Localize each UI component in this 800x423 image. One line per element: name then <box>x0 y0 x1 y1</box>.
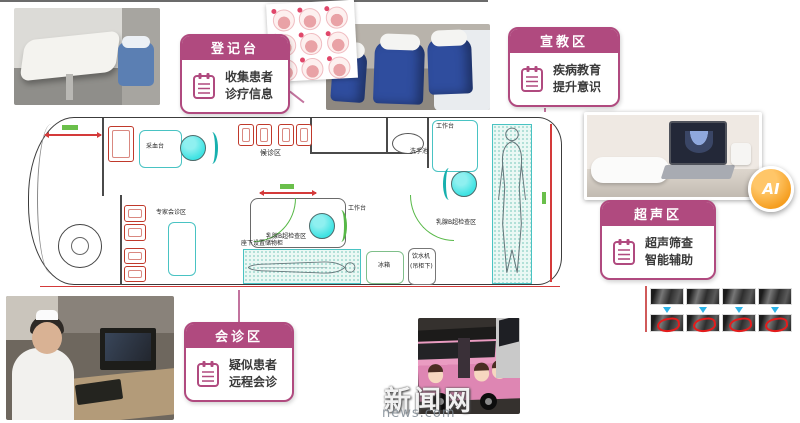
ultrasound-thumbnail-annotated <box>650 314 684 332</box>
callout-consultation-title: 会诊区 <box>186 324 292 348</box>
consult-seat <box>124 205 146 222</box>
consult-seat <box>124 248 146 264</box>
poster-illustration <box>272 9 295 32</box>
poster-illustration <box>325 6 348 29</box>
label-water-dispenser: 饮水机 <box>412 254 430 261</box>
table-leg <box>66 74 73 100</box>
ultrasound-thumbnail-annotated <box>722 314 756 332</box>
down-arrow-icon <box>735 307 743 313</box>
ultrasound-scan-image <box>685 131 713 153</box>
ai-badge-label: AI <box>762 180 779 198</box>
callout-ultrasound-title: 超声区 <box>602 202 714 226</box>
pillow <box>591 157 669 183</box>
dimension-arrow <box>550 124 552 282</box>
clipboard-icon <box>612 238 636 266</box>
stool <box>180 135 206 161</box>
bus-windows <box>418 341 495 360</box>
label-waiting-area: 候诊区 <box>260 150 281 158</box>
down-arrow-icon <box>663 307 671 313</box>
connector-line <box>645 286 647 332</box>
down-arrow-icon <box>699 307 707 313</box>
poster-illustration <box>301 57 324 80</box>
dimension-arrow <box>45 134 101 136</box>
watermark-en: news.com <box>382 406 456 421</box>
seat-back-arc <box>443 168 455 200</box>
cartoon-face <box>474 365 490 382</box>
stool <box>309 213 335 239</box>
partition-wall <box>102 118 104 196</box>
standing-exam-zone <box>492 124 532 284</box>
bus-front <box>496 318 520 378</box>
ultrasound-row-annotated <box>650 314 796 332</box>
label-underseat-storage: 座下设置储物柜 <box>241 241 283 248</box>
callout-ultrasound: 超声区 超声筛查 智能辅助 <box>600 200 716 280</box>
driver-seat <box>108 126 134 162</box>
poster-illustration <box>326 31 349 54</box>
bus-wheel <box>480 393 497 410</box>
ultrasound-keyboard <box>661 165 736 179</box>
callout-registration: 登记台 收集患者 诊疗信息 <box>180 34 290 114</box>
callout-education: 宣教区 疾病教育 提升意识 <box>508 27 620 107</box>
ultrasound-thumbnail <box>650 288 684 305</box>
tissue-box <box>731 143 751 165</box>
ultrasound-thumbnail <box>722 288 756 305</box>
label-sink: 洗手池 <box>410 149 428 156</box>
callout-registration-line1: 收集患者 <box>225 69 273 86</box>
poster-illustration <box>328 56 351 79</box>
dimension-label <box>280 184 294 189</box>
registration-desk-photo <box>14 8 160 105</box>
ultrasound-machine-photo <box>584 112 762 200</box>
label-worktable: 工作台 <box>436 124 454 131</box>
callout-consultation: 会诊区 疑似患者 远程会诊 <box>184 322 294 402</box>
ai-badge: AI <box>748 166 794 212</box>
callout-education-line1: 疾病教育 <box>553 62 601 79</box>
consult-table <box>168 222 196 276</box>
seat-back-arc <box>335 210 347 242</box>
nurse-cap <box>36 310 58 320</box>
connector-line <box>238 290 240 322</box>
nurse-figure <box>12 348 74 420</box>
callout-registration-title: 登记台 <box>182 36 288 60</box>
waiting-seat <box>296 124 312 146</box>
label-worktable: 工作台 <box>348 206 366 213</box>
partition-wall <box>427 118 429 168</box>
bus-floorplan: 采血台 候诊区 洗手池 工作台 专家会诊区 乳腺B超检查区 工作台 座下设置储物… <box>22 112 570 290</box>
partition-wall <box>312 152 412 154</box>
ultrasound-screen <box>669 121 727 165</box>
waiting-seat <box>278 124 294 146</box>
waiting-seat <box>256 124 272 146</box>
label-breast-ultrasound-area: 乳腺B超检查区 <box>436 220 476 227</box>
consult-seat <box>124 224 146 241</box>
poster-illustration <box>300 32 323 55</box>
remote-consultation-photo <box>6 296 174 420</box>
callout-consultation-line1: 疑似患者 <box>229 357 277 374</box>
waiting-seat <box>238 124 254 146</box>
ai-detection-strip <box>650 288 796 332</box>
callout-consultation-line2: 远程会诊 <box>229 374 277 391</box>
arrow-row <box>650 305 796 314</box>
callout-registration-line2: 诊疗信息 <box>225 86 273 103</box>
label-blood-draw-desk: 采血台 <box>146 144 164 151</box>
clipboard-icon <box>192 72 216 100</box>
down-arrow-icon <box>771 307 779 313</box>
clipboard-icon <box>196 360 220 388</box>
connector-line <box>289 91 304 103</box>
poster-illustration <box>299 8 322 31</box>
patient-figure-standing <box>494 125 530 281</box>
label-expert-consult-area: 专家会诊区 <box>156 210 186 217</box>
nurse-head <box>32 322 62 354</box>
monitor <box>100 328 156 370</box>
front-wheel <box>58 224 102 268</box>
label-water-dispenser-note: (吊柜下) <box>410 264 433 271</box>
ultrasound-thumbnail <box>758 288 792 305</box>
callout-education-title: 宣教区 <box>510 29 618 53</box>
label-fridge: 冰箱 <box>378 263 390 270</box>
callout-ultrasound-line2: 智能辅助 <box>645 252 693 269</box>
callout-education-line2: 提升意识 <box>553 79 601 96</box>
callout-ultrasound-line1: 超声筛查 <box>645 235 693 252</box>
bus-door <box>458 338 470 378</box>
top-border-line <box>0 0 488 2</box>
dimension-label <box>542 192 546 204</box>
dimension-label <box>62 125 78 130</box>
ultrasound-thumbnail-annotated <box>686 314 720 332</box>
partition-wall <box>386 118 388 152</box>
seat-back-arc <box>206 132 218 164</box>
clipboard-icon <box>520 65 544 93</box>
consult-seat <box>124 266 146 282</box>
exam-bed-zone <box>243 249 361 284</box>
seat <box>427 37 473 95</box>
blue-seat <box>118 42 154 86</box>
patient-figure-lying <box>244 252 358 283</box>
dimension-baseline <box>40 286 560 287</box>
seat <box>373 41 425 105</box>
dimension-arrow <box>260 192 316 194</box>
ultrasound-row-original <box>650 288 796 305</box>
ultrasound-thumbnail <box>686 288 720 305</box>
ultrasound-thumbnail-annotated <box>758 314 792 332</box>
partition-wall <box>120 195 122 285</box>
